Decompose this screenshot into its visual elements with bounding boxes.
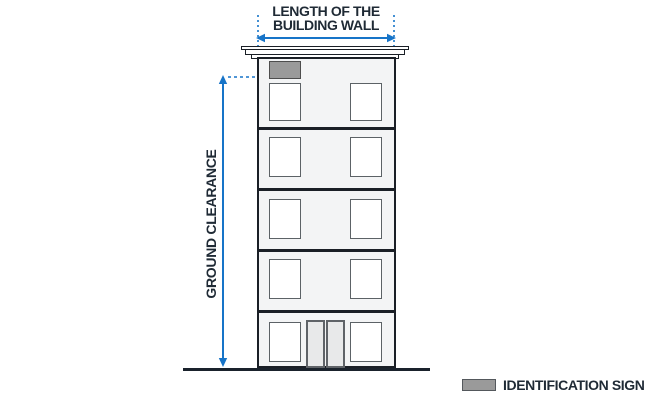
legend: IDENTIFICATION SIGN [462, 377, 644, 393]
legend-label: IDENTIFICATION SIGN [503, 377, 644, 393]
length-arrow [256, 34, 396, 42]
ground-clearance-label: GROUND CLEARANCE [203, 149, 219, 298]
ground-clearance-arrow [219, 75, 227, 367]
measurement-annotations [0, 0, 650, 401]
identification-sign-swatch [462, 379, 496, 391]
diagram-canvas: LENGTH OF THE BUILDING WALL [0, 0, 650, 401]
